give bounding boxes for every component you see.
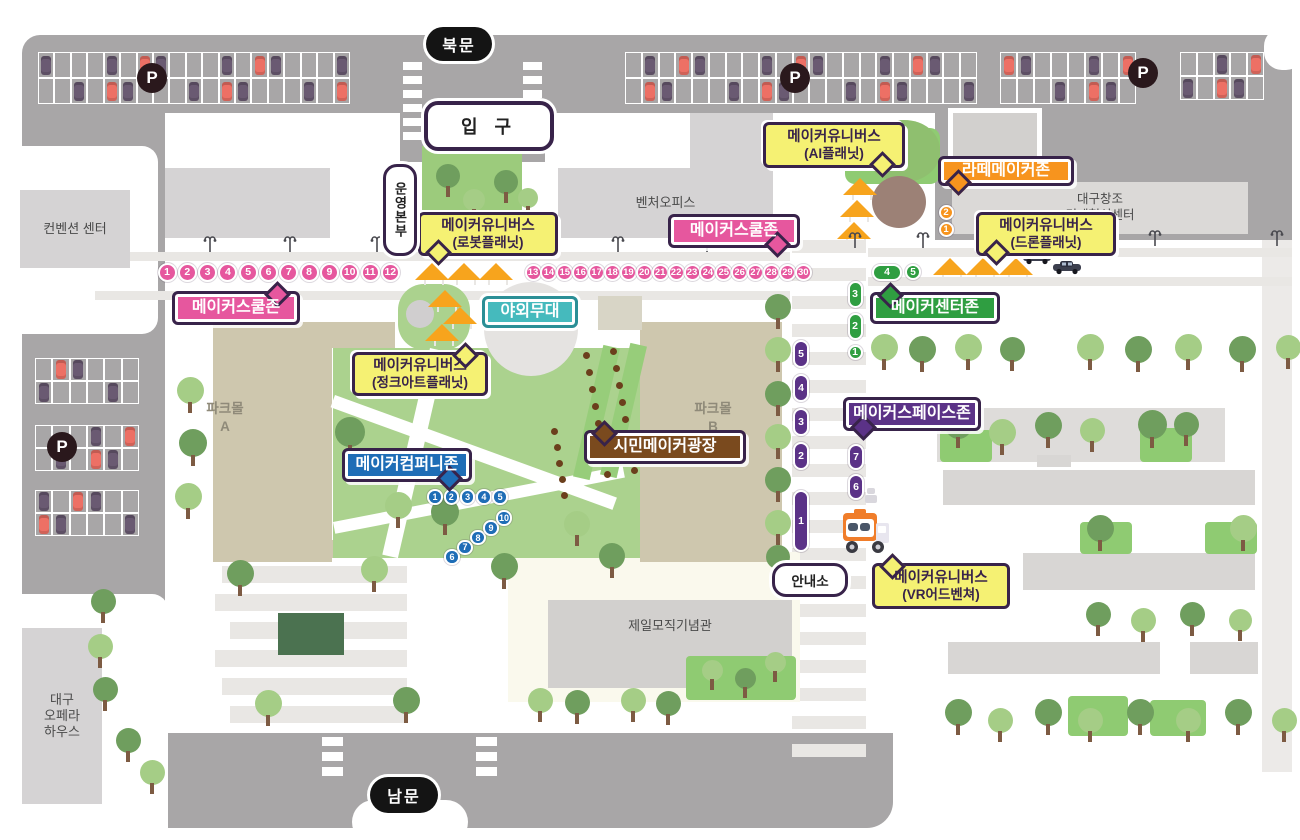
parked-car-icon xyxy=(897,82,907,101)
tree-icon xyxy=(436,164,460,188)
tree-icon xyxy=(564,511,590,537)
parking-stall xyxy=(202,52,218,78)
parked-car-icon xyxy=(729,82,739,101)
planting-dot xyxy=(622,416,629,423)
booth-number-marker[interactable]: 28 xyxy=(763,264,780,281)
booth-number-marker[interactable]: 19 xyxy=(620,264,637,281)
tree-icon xyxy=(765,510,791,536)
parked-car-icon xyxy=(964,82,974,101)
booth-number-marker[interactable]: 29 xyxy=(779,264,796,281)
parked-car-icon xyxy=(645,56,655,75)
parking-stall xyxy=(1068,78,1085,104)
parkmall-a-label: 파크몰A xyxy=(195,400,255,436)
parking-stall xyxy=(927,78,944,104)
tent-icon xyxy=(840,200,874,217)
zone-label-company[interactable]: 메이커컴퍼니존 xyxy=(342,448,472,482)
booth-number-marker[interactable]: 5 xyxy=(239,263,258,282)
parking-stall xyxy=(1051,52,1068,78)
planting-dot xyxy=(551,428,558,435)
zone-name: 메이커스페이스존 xyxy=(853,405,971,423)
parked-car-icon xyxy=(695,56,705,75)
zone-subname: (로봇플래닛) xyxy=(452,235,523,250)
parked-car-icon xyxy=(222,82,232,101)
parked-car-icon xyxy=(662,82,672,101)
parked-car-icon xyxy=(108,450,118,469)
tree-icon xyxy=(393,687,420,714)
parked-car-icon xyxy=(880,56,890,75)
booth-number-marker[interactable]: 16 xyxy=(572,264,589,281)
parking-badge[interactable]: P xyxy=(47,432,77,462)
parking-stall xyxy=(1068,52,1085,78)
parking-stall xyxy=(87,52,103,78)
parking-stall xyxy=(625,78,642,104)
parking-stall xyxy=(71,52,87,78)
tree-icon xyxy=(1175,334,1202,361)
ops-hq-badge[interactable]: 운영본부 xyxy=(383,164,417,256)
zone-name: 메이커센터존 xyxy=(891,299,979,317)
tent-icon xyxy=(447,263,481,280)
parking-stall xyxy=(104,513,121,536)
tree-icon xyxy=(1000,337,1025,362)
parked-car-icon xyxy=(1251,55,1261,74)
tree-icon xyxy=(765,294,791,320)
booth-number-marker[interactable]: 2 xyxy=(939,205,954,220)
booth-number-marker[interactable]: 25 xyxy=(715,264,732,281)
parking-stall xyxy=(726,52,743,78)
tree-icon xyxy=(494,170,518,194)
parked-car-icon xyxy=(913,56,923,75)
zone-name: 메이커컴퍼니존 xyxy=(355,456,458,474)
zone-subname: (드론플래닛) xyxy=(1010,235,1081,250)
planting-dot xyxy=(556,460,563,467)
parking-stall xyxy=(910,78,927,104)
booth-number-marker[interactable]: 21 xyxy=(652,264,669,281)
tent-icon xyxy=(428,290,462,307)
parked-car-icon xyxy=(56,360,66,379)
zone-subname: (AI플래닛) xyxy=(804,146,864,161)
parking-stall xyxy=(104,358,121,381)
parking-stall xyxy=(742,78,759,104)
parked-car-icon xyxy=(1089,82,1099,101)
parking-stall xyxy=(87,381,104,404)
parked-car-icon xyxy=(679,56,689,75)
parking-stall xyxy=(87,358,104,381)
parking-stall xyxy=(675,78,692,104)
tree-icon xyxy=(765,652,786,673)
tree-icon xyxy=(1229,609,1252,632)
building-convention-center: 컨벤션 센터 xyxy=(20,190,130,268)
tree-icon xyxy=(361,556,388,583)
tree-icon xyxy=(491,553,518,580)
planting-dot xyxy=(613,365,620,372)
food-truck-icon xyxy=(840,505,892,557)
booth-number-marker[interactable]: 14 xyxy=(540,264,557,281)
parking-stall xyxy=(104,425,121,448)
tree-icon xyxy=(735,668,756,689)
booth-number-marker[interactable]: 4 xyxy=(218,263,237,282)
parkmall-a-building xyxy=(213,348,332,562)
tree-icon xyxy=(1125,336,1152,363)
parking-stall xyxy=(169,78,185,104)
east-walkway xyxy=(1262,240,1292,772)
zone-name: 메이커유니버스 xyxy=(894,570,987,586)
parking-stall xyxy=(843,52,860,78)
bubble-tail xyxy=(425,239,452,266)
tent-icon xyxy=(415,263,449,280)
parked-car-icon xyxy=(930,56,940,75)
building-block xyxy=(1023,553,1255,590)
planting-dot xyxy=(559,476,566,483)
building-label: 제일모직기념관 xyxy=(548,618,792,635)
festival-map: 컨벤션 센터 벤처오피스 대구창조 경제혁신센터 파크몰A 파크몰B 제일모직기… xyxy=(0,0,1300,840)
crosswalk-stripe xyxy=(476,737,497,746)
parked-car-icon xyxy=(73,492,83,511)
parking-stall xyxy=(1230,52,1247,76)
booth-number-marker[interactable]: 9 xyxy=(320,263,339,282)
tree-icon xyxy=(765,381,791,407)
parking-stall xyxy=(122,381,139,404)
crosswalk-stripe xyxy=(523,90,542,98)
tree-icon xyxy=(656,691,681,716)
booth-number-marker[interactable]: 3 xyxy=(198,263,217,282)
parking-stall xyxy=(169,52,185,78)
booth-number-marker[interactable]: 1 xyxy=(848,345,863,360)
parking-stall xyxy=(70,513,87,536)
booth-number-marker[interactable]: 3 xyxy=(848,281,863,308)
parking-stall xyxy=(709,78,726,104)
tree-icon xyxy=(1127,699,1154,726)
parking-stall xyxy=(1034,52,1051,78)
crosswalk-stripe xyxy=(523,62,542,70)
parking-badge[interactable]: P xyxy=(1128,58,1158,88)
booth-number-marker[interactable]: 30 xyxy=(795,264,812,281)
parking-stall xyxy=(38,78,54,104)
booth-number-marker[interactable]: 22 xyxy=(668,264,685,281)
parked-car-icon xyxy=(56,515,66,534)
street-lamp-icon xyxy=(201,234,219,252)
parked-car-icon xyxy=(1217,79,1227,98)
booth-number-marker[interactable]: 1 xyxy=(427,489,443,505)
parking-stall xyxy=(943,78,960,104)
zone-subname: (정크아트플래닛) xyxy=(372,375,468,390)
tent-icon xyxy=(843,178,877,195)
parked-car-icon xyxy=(91,427,101,446)
booth-number-marker[interactable]: 7 xyxy=(848,444,864,470)
parking-stall xyxy=(1102,52,1119,78)
crosswalk-stripe xyxy=(523,76,542,84)
building-unnamed-west xyxy=(165,168,330,238)
tree-icon xyxy=(765,424,791,450)
tree-icon xyxy=(621,688,646,713)
parked-car-icon xyxy=(337,82,347,101)
tree-icon xyxy=(1078,708,1103,733)
zone-label-latte[interactable]: 라떼메이커존 xyxy=(938,156,1074,186)
parking-stall xyxy=(251,78,267,104)
parked-car-icon xyxy=(1106,82,1116,101)
zone-name: 야외무대 xyxy=(501,303,560,321)
booth-number-marker[interactable]: 15 xyxy=(556,264,573,281)
booth-number-marker[interactable]: 10 xyxy=(340,263,359,282)
car-icon xyxy=(1052,260,1082,275)
crosswalk-stripe xyxy=(322,752,343,761)
parking-badge[interactable]: P xyxy=(780,63,810,93)
booth-number-marker[interactable]: 17 xyxy=(588,264,605,281)
tree-icon xyxy=(871,334,898,361)
entrance-badge[interactable]: 입 구 xyxy=(424,101,554,151)
tree-icon xyxy=(955,334,982,361)
tree-icon xyxy=(1174,412,1199,437)
tree-icon xyxy=(1225,699,1252,726)
planting-dot xyxy=(561,492,568,499)
booth-number-marker[interactable]: 1 xyxy=(939,222,954,237)
zone-name: 메이커유니버스 xyxy=(787,129,880,145)
promenade-stripe xyxy=(792,744,866,757)
planting-dot xyxy=(604,471,611,478)
tree-icon xyxy=(989,419,1016,446)
building-block xyxy=(943,470,1255,505)
tree-icon xyxy=(1077,334,1104,361)
parked-car-icon xyxy=(1183,79,1193,98)
tree-icon xyxy=(140,760,165,785)
parked-car-icon xyxy=(41,56,51,75)
zone-label-center[interactable]: 메이커센터존 xyxy=(870,292,1000,324)
booth-number-marker[interactable]: 6 xyxy=(259,263,278,282)
parking-stall xyxy=(186,52,202,78)
parking-stall xyxy=(120,52,136,78)
booth-number-marker[interactable]: 3 xyxy=(793,408,809,436)
parking-stall xyxy=(860,78,877,104)
parking-stall xyxy=(52,490,69,513)
terrace-stage-block xyxy=(278,613,344,655)
stage-side-block xyxy=(598,296,642,330)
tree-icon xyxy=(1230,515,1257,542)
tree-icon xyxy=(565,690,590,715)
parked-car-icon xyxy=(238,82,248,101)
tree-icon xyxy=(1229,336,1256,363)
tree-icon xyxy=(1131,608,1156,633)
planting-dot xyxy=(610,348,617,355)
parked-car-icon xyxy=(846,82,856,101)
parking-stall xyxy=(1034,78,1051,104)
terrace-step xyxy=(215,594,407,611)
parking-stall xyxy=(1000,78,1017,104)
tree-icon xyxy=(945,699,972,726)
zone-label-robot[interactable]: 메이커유니버스(로봇플래닛) xyxy=(418,212,558,256)
zone-name: 메이커유니버스 xyxy=(999,218,1092,234)
booth-number-marker[interactable]: 20 xyxy=(636,264,653,281)
parking-stall xyxy=(860,52,877,78)
booth-number-marker[interactable]: 2 xyxy=(793,442,809,470)
parked-car-icon xyxy=(304,82,314,101)
parking-stall xyxy=(235,52,251,78)
planting-dot xyxy=(619,399,626,406)
zone-label-citizen[interactable]: 시민메이커광장 xyxy=(584,430,746,464)
tree-icon xyxy=(227,560,254,587)
tree-icon xyxy=(1180,602,1205,627)
parking-stall xyxy=(122,448,139,471)
booth-number-marker[interactable]: 6 xyxy=(848,474,864,500)
zone-label-space[interactable]: 메이커스페이스존 xyxy=(843,397,981,431)
parking-stall xyxy=(809,78,826,104)
tree-icon xyxy=(765,467,791,493)
road-south xyxy=(160,733,893,828)
tree-icon xyxy=(518,188,538,208)
parked-car-icon xyxy=(189,82,199,101)
parking-stall xyxy=(284,78,300,104)
planting-dot xyxy=(586,369,593,376)
parkmall-structure xyxy=(213,322,395,348)
zone-name: 메이커유니버스 xyxy=(373,358,466,374)
parked-car-icon xyxy=(73,360,83,379)
booth-number-marker[interactable]: 5 xyxy=(492,489,508,505)
parking-badge[interactable]: P xyxy=(137,63,167,93)
building-block xyxy=(948,642,1160,674)
parking-stall xyxy=(202,78,218,104)
parked-car-icon xyxy=(645,82,655,101)
parking-stall xyxy=(692,78,709,104)
parking-stall xyxy=(1180,52,1197,76)
robot-icon xyxy=(862,486,880,506)
booth-number-marker[interactable]: 24 xyxy=(699,264,716,281)
parking-stall xyxy=(70,381,87,404)
booth-number-marker[interactable]: 4 xyxy=(872,264,902,281)
crosswalk-stripe xyxy=(476,767,497,776)
parking-stall xyxy=(52,381,69,404)
parked-car-icon xyxy=(1234,79,1244,98)
tent-icon xyxy=(479,263,513,280)
north-gate-badge[interactable]: 북문 xyxy=(426,27,492,61)
tree-icon xyxy=(385,492,412,519)
crosswalk-stripe xyxy=(403,62,422,70)
street-lamp-icon xyxy=(281,234,299,252)
tree-icon xyxy=(909,336,936,363)
parking-stall xyxy=(54,78,70,104)
booth-number-marker[interactable]: 23 xyxy=(684,264,701,281)
parked-car-icon xyxy=(1021,56,1031,75)
parked-car-icon xyxy=(222,56,232,75)
parking-stall xyxy=(54,52,70,78)
parking-stall xyxy=(284,52,300,78)
crosswalk-stripe xyxy=(403,90,422,98)
tree-icon xyxy=(93,677,118,702)
booth-number-marker[interactable]: 1 xyxy=(793,490,809,552)
booth-number-marker[interactable]: 11 xyxy=(361,263,380,282)
crosswalk-stripe xyxy=(403,118,422,126)
parking-stall xyxy=(301,52,317,78)
building-block xyxy=(1037,455,1071,467)
parking-stall xyxy=(87,78,103,104)
parking-stall xyxy=(709,52,726,78)
walk-strip xyxy=(868,277,1292,286)
street-lamp-icon xyxy=(846,230,864,248)
parked-car-icon xyxy=(762,82,772,101)
northeast-notch xyxy=(1264,28,1300,70)
zone-label-school-west[interactable]: 메이커스쿨존 xyxy=(172,291,300,325)
parking-stall xyxy=(742,52,759,78)
crosswalk-stripe xyxy=(403,132,422,140)
booth-number-marker[interactable]: 18 xyxy=(604,264,621,281)
zone-label-junkart[interactable]: 메이커유니버스(정크아트플래닛) xyxy=(352,352,488,396)
tree-icon xyxy=(335,417,365,447)
parking-stall xyxy=(1017,78,1034,104)
crosswalk-stripe xyxy=(322,767,343,776)
zone-label-stage[interactable]: 야외무대 xyxy=(482,296,578,328)
planting-dot xyxy=(583,352,590,359)
booth-number-marker[interactable]: 4 xyxy=(793,374,809,402)
info-booth-badge[interactable]: 안내소 xyxy=(772,563,848,597)
booth-number-marker[interactable]: 10 xyxy=(496,510,512,526)
zone-name: 시민메이커광장 xyxy=(613,438,716,456)
building-label: 컨벤션 센터 xyxy=(43,221,106,237)
booth-number-marker[interactable]: 5 xyxy=(905,264,921,280)
promenade-stripe xyxy=(792,632,866,645)
street-lamp-icon xyxy=(609,234,627,252)
booth-number-marker[interactable]: 2 xyxy=(178,263,197,282)
tree-icon xyxy=(1035,412,1062,439)
promenade-stripe xyxy=(792,604,866,617)
booth-number-marker[interactable]: 7 xyxy=(279,263,298,282)
booth-number-marker[interactable]: 27 xyxy=(747,264,764,281)
booth-number-marker[interactable]: 2 xyxy=(444,489,460,505)
parking-stall xyxy=(893,52,910,78)
tree-icon xyxy=(599,543,625,569)
promenade-stripe xyxy=(792,688,866,701)
tree-planter xyxy=(872,176,926,228)
parked-car-icon xyxy=(91,450,101,469)
zone-label-drone[interactable]: 메이커유니버스(드론플래닛) xyxy=(976,212,1116,256)
street-lamp-icon xyxy=(1146,228,1164,246)
tree-icon xyxy=(1035,699,1062,726)
parked-car-icon xyxy=(337,56,347,75)
booth-number-marker[interactable]: 4 xyxy=(476,489,492,505)
crosswalk-stripe xyxy=(476,752,497,761)
parking-stall xyxy=(122,490,139,513)
parked-car-icon xyxy=(762,56,772,75)
parked-car-icon xyxy=(108,383,118,402)
booth-number-marker[interactable]: 12 xyxy=(381,263,400,282)
parking-stall xyxy=(943,52,960,78)
zone-subname: (VR어드벤쳐) xyxy=(902,587,979,602)
parking-stall xyxy=(1197,52,1214,76)
tent-icon xyxy=(933,258,967,275)
south-gate-badge[interactable]: 남문 xyxy=(370,777,438,813)
zone-label-school-east[interactable]: 메이커스쿨존 xyxy=(668,214,800,248)
tree-icon xyxy=(88,634,113,659)
zone-label-vr[interactable]: 메이커유니버스(VR어드벤쳐) xyxy=(872,563,1010,609)
booth-number-marker[interactable]: 2 xyxy=(848,313,863,340)
zone-name: 메이커스쿨존 xyxy=(192,299,280,317)
zone-label-ai[interactable]: 메이커유니버스(AI플래닛) xyxy=(763,122,905,168)
street-lamp-icon xyxy=(914,230,932,248)
zone-name: 라떼메이커존 xyxy=(962,162,1050,180)
zone-name: 메이커유니버스 xyxy=(441,218,534,234)
zone-name: 메이커스쿨존 xyxy=(690,222,778,240)
tree-icon xyxy=(463,189,485,211)
parked-car-icon xyxy=(125,515,135,534)
booth-number-marker[interactable]: 1 xyxy=(158,263,177,282)
parked-car-icon xyxy=(255,56,265,75)
booth-number-marker[interactable]: 13 xyxy=(525,264,542,281)
tree-icon xyxy=(528,688,553,713)
booth-number-marker[interactable]: 3 xyxy=(460,489,476,505)
booth-number-marker[interactable]: 26 xyxy=(731,264,748,281)
booth-number-marker[interactable]: 8 xyxy=(300,263,319,282)
parking-stall xyxy=(625,52,642,78)
planting-dot xyxy=(554,444,561,451)
booth-number-marker[interactable]: 5 xyxy=(793,340,809,368)
terrace-step xyxy=(222,678,407,695)
tree-icon xyxy=(1176,708,1201,733)
